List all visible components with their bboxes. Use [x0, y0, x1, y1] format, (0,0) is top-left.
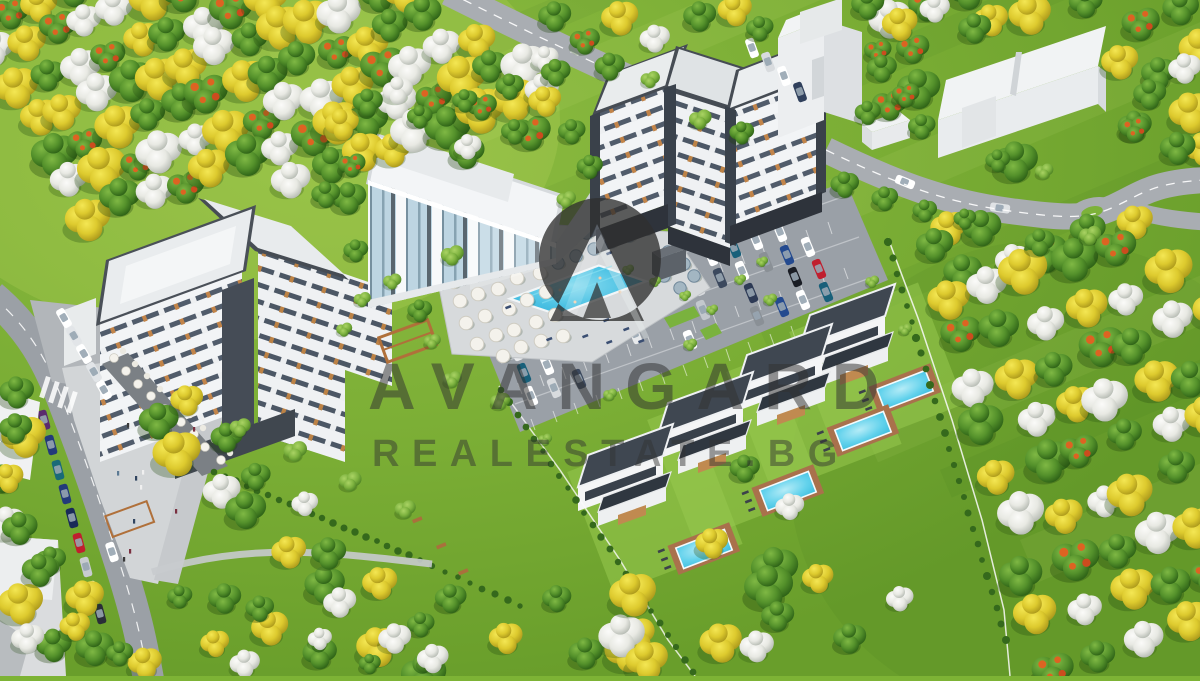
svg-text:AVANGARD: AVANGARD: [368, 349, 900, 423]
svg-text:REALESTATE.BG: REALESTATE.BG: [372, 433, 850, 475]
